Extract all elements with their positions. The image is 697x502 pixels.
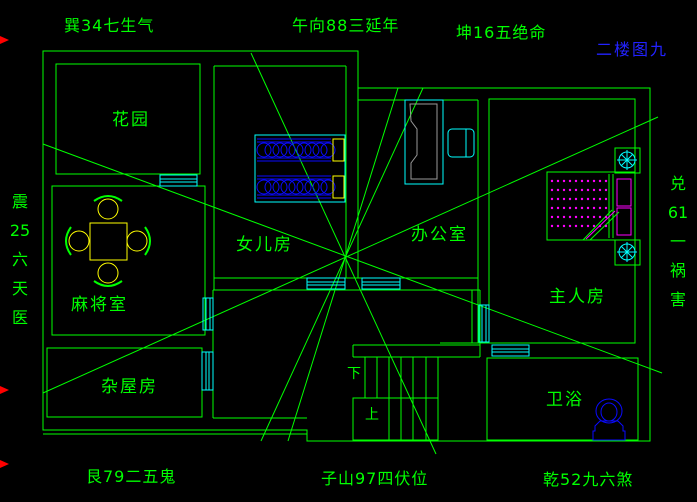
vertical-char: 25	[10, 223, 30, 239]
room-label-bathroom: 卫浴	[546, 385, 584, 410]
office-desk	[405, 100, 443, 184]
edge-marker-icon	[0, 36, 9, 44]
vertical-char: 医	[12, 310, 28, 326]
ceiling-fixture-icon	[615, 240, 640, 265]
daughter-room-door-icon	[307, 278, 345, 289]
room-label-garden: 花园	[112, 105, 150, 130]
staircase	[353, 357, 438, 440]
vertical-char: 一	[670, 234, 686, 250]
vertical-char: 61	[668, 205, 688, 221]
label-zishan-direction: 子山97四伏位	[321, 465, 428, 489]
stairs-up-label: 上	[365, 404, 379, 424]
label-xun-direction: 巽34七生气	[64, 12, 154, 36]
cad-drawing-canvas: 巽34七生气 午向88三延年 坤16五绝命 二楼图九 震 25 六 天 医 兑 …	[0, 0, 697, 502]
label-wu-direction: 午向88三延年	[292, 12, 399, 36]
mattress-springs	[257, 180, 335, 194]
room-label-master: 主人房	[549, 282, 606, 307]
mahjong-table-set	[66, 196, 150, 286]
blanket-dot-pattern	[551, 180, 607, 227]
room-label-daughter: 女儿房	[236, 230, 293, 255]
drawing-title: 二楼图九	[596, 36, 668, 60]
label-kun-direction: 坤16五绝命	[456, 19, 546, 43]
edge-marker-icon	[0, 386, 9, 394]
room-label-office: 办公室	[411, 220, 468, 245]
vertical-char: 祸	[670, 263, 686, 279]
floorplan-drawing	[0, 0, 697, 502]
label-zhen-direction: 震 25 六 天 医	[5, 194, 35, 339]
twin-beds	[255, 135, 345, 202]
vertical-char: 天	[12, 281, 28, 297]
garden-window-icon	[160, 175, 197, 186]
master-room-window-icon	[492, 345, 529, 356]
vertical-char: 害	[670, 292, 686, 308]
edge-marker-icon	[0, 460, 9, 468]
stairs-down-label: 下	[347, 363, 361, 383]
label-gen-direction: 艮79二五鬼	[86, 463, 176, 487]
office-chair	[448, 129, 474, 157]
room-label-mahjong: 麻将室	[71, 290, 128, 315]
master-bed	[547, 172, 635, 240]
vertical-char: 兑	[670, 176, 686, 192]
office-door-icon	[362, 278, 400, 289]
room-label-storage: 杂屋房	[101, 372, 158, 397]
vertical-char: 六	[12, 252, 28, 268]
storage-room-door-icon	[202, 352, 213, 390]
ceiling-fixture-icon	[615, 148, 640, 173]
toilet-icon	[593, 399, 625, 440]
label-qian-direction: 乾52九六煞	[543, 466, 633, 490]
label-dui-direction: 兑 61 一 祸 害	[663, 176, 693, 321]
vertical-char: 震	[12, 194, 28, 210]
